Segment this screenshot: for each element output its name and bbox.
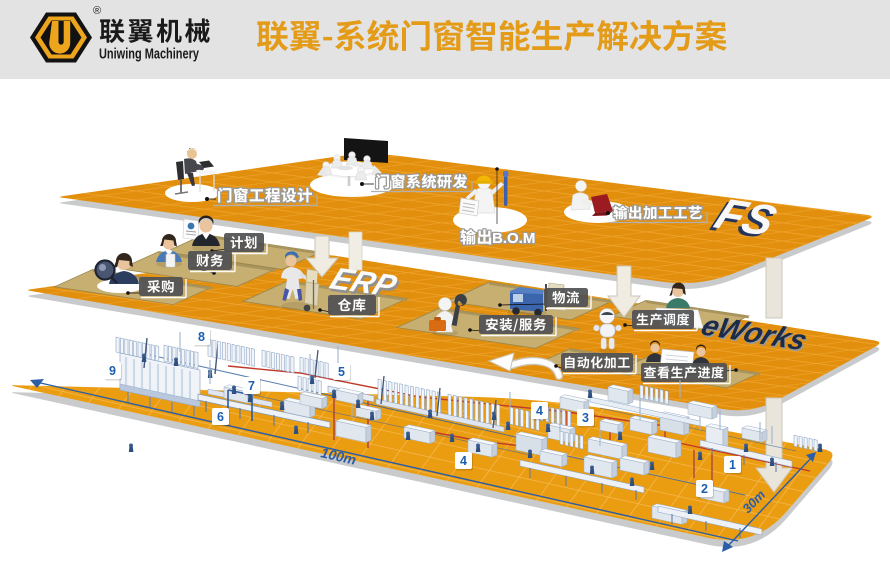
svg-text:3: 3: [582, 411, 589, 425]
svg-text:®: ®: [93, 5, 101, 17]
svg-text:8: 8: [198, 330, 205, 344]
svg-text:5: 5: [338, 365, 345, 379]
svg-text:6: 6: [217, 410, 224, 424]
svg-text:4: 4: [536, 404, 543, 418]
svg-text:4: 4: [460, 454, 467, 468]
svg-text:1: 1: [729, 458, 736, 472]
svg-text:B.O.M: B.O.M: [492, 230, 535, 247]
svg-text:9: 9: [109, 364, 116, 378]
svg-text:7: 7: [248, 379, 255, 393]
svg-text:2: 2: [701, 482, 708, 496]
svg-text:Uniwing Machinery: Uniwing Machinery: [99, 47, 199, 63]
